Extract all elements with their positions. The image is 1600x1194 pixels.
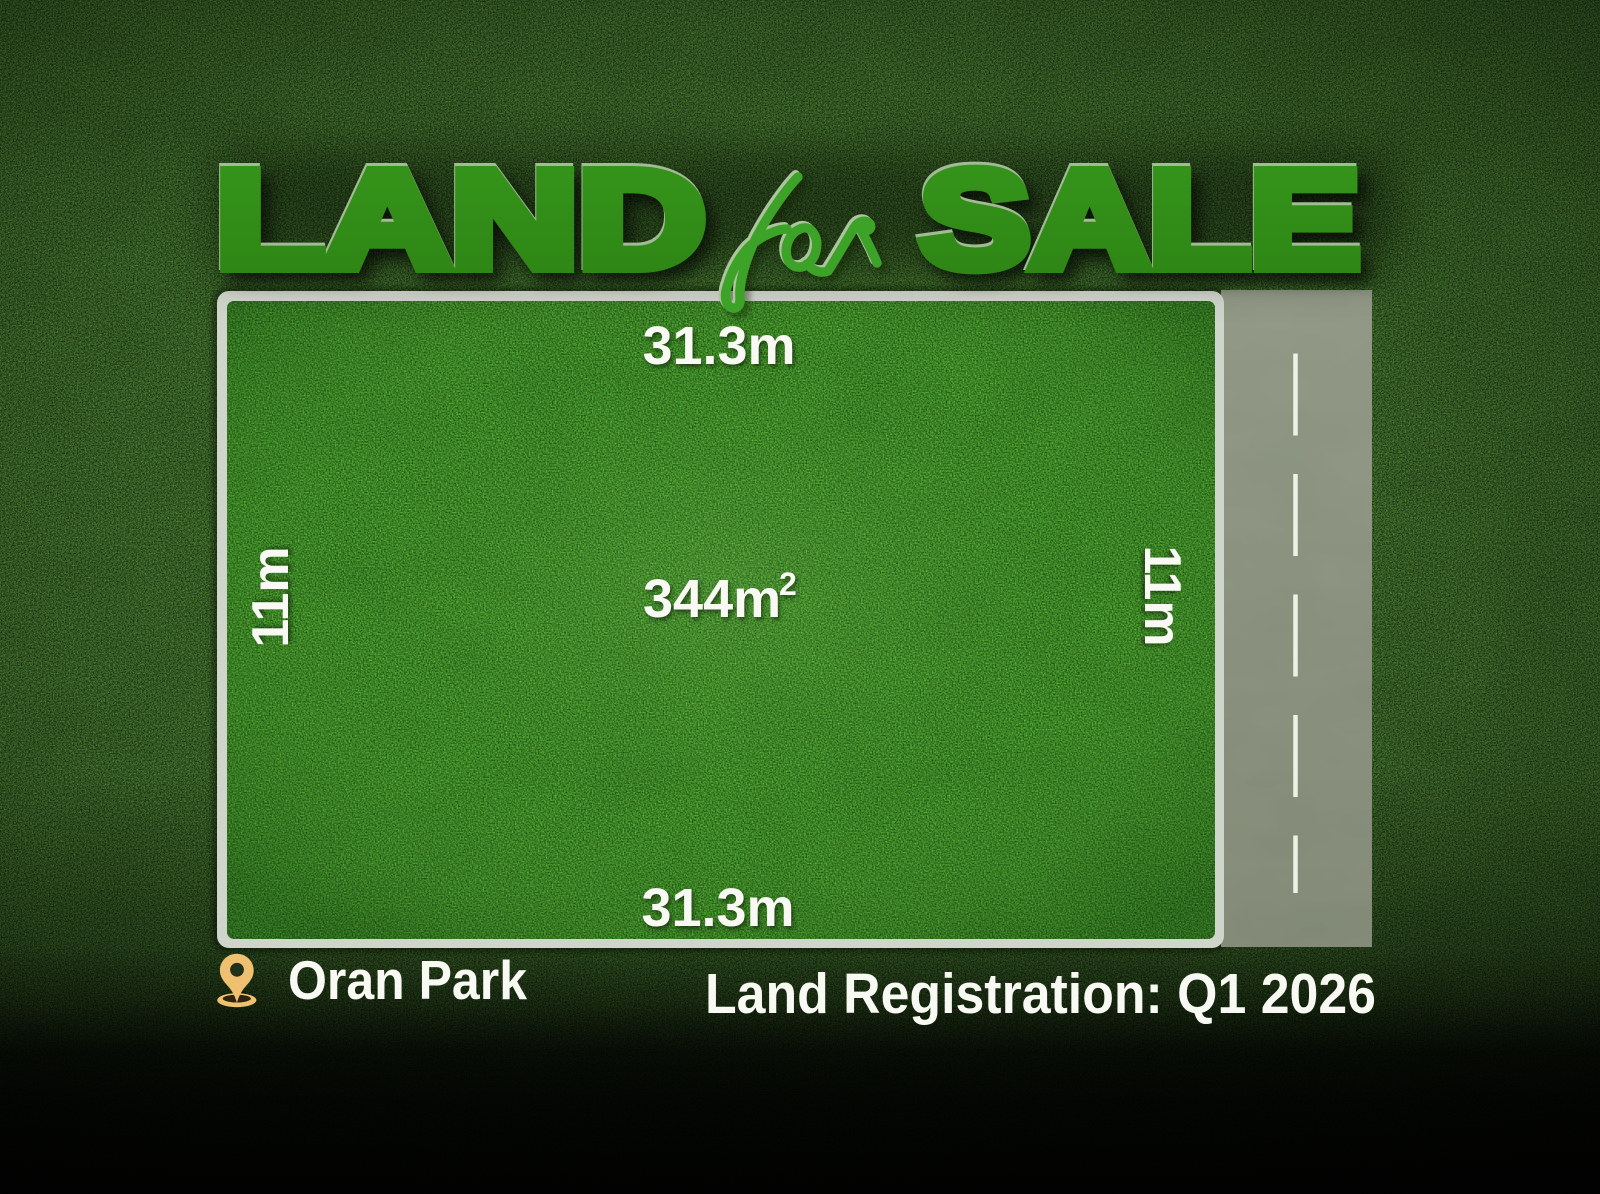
- svg-text:31.3m: 31.3m: [642, 316, 795, 376]
- svg-text:11m: 11m: [1133, 545, 1191, 646]
- svg-text:SALE: SALE: [920, 143, 1360, 297]
- svg-text:Oran Park: Oran Park: [288, 949, 527, 1011]
- svg-text:11m: 11m: [242, 546, 300, 647]
- svg-text:31.3m: 31.3m: [641, 878, 794, 938]
- svg-text:344m: 344m: [643, 569, 781, 629]
- svg-text:LAND: LAND: [216, 142, 706, 296]
- svg-text:Land Registration: Q1 2026: Land Registration: Q1 2026: [705, 962, 1376, 1026]
- svg-text:2: 2: [779, 566, 797, 602]
